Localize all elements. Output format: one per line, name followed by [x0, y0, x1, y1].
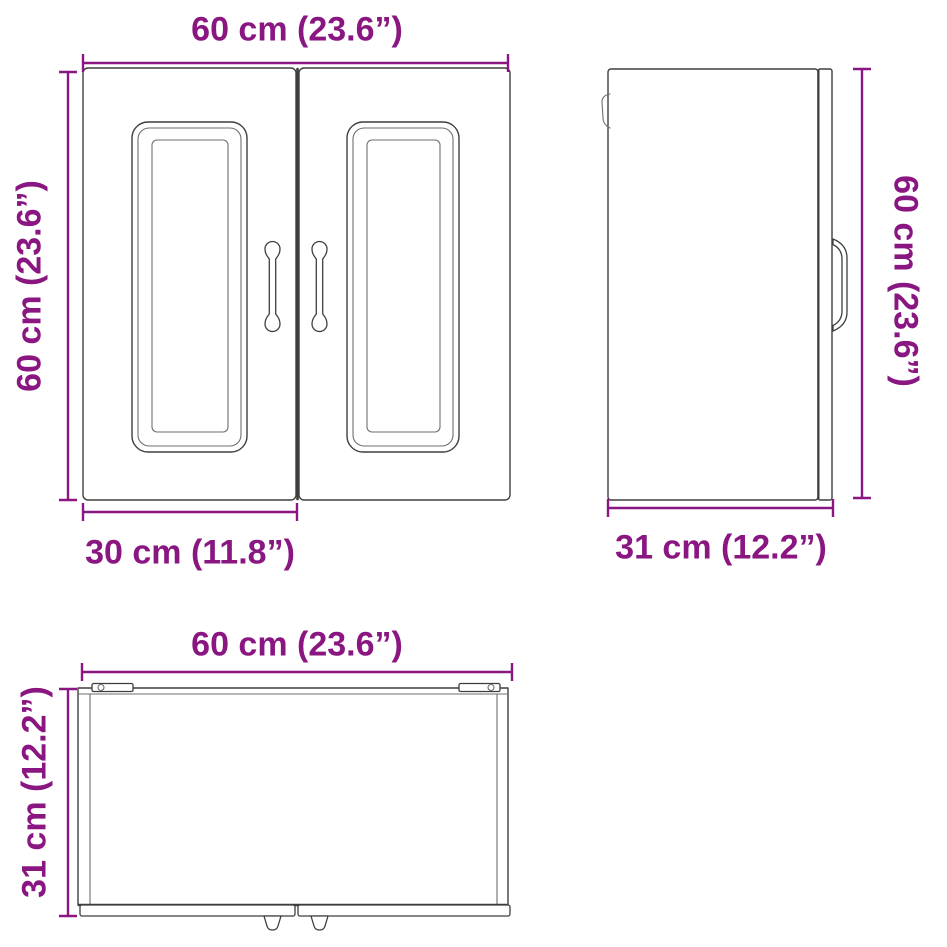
cabinet-line-art [0, 0, 947, 947]
side-door-edge [818, 69, 832, 500]
front-height-label: 60 cm (23.6”) [11, 180, 50, 392]
front-right-door-panel [347, 122, 459, 452]
front-left-door-handle [265, 242, 280, 332]
top-left-handle-tab [264, 916, 281, 930]
top-left-hinge [92, 684, 133, 692]
side-view-drawing [602, 69, 847, 500]
front-view-drawing [83, 68, 510, 500]
front-width-dimension-line [83, 54, 508, 72]
top-view-drawing [78, 684, 510, 931]
front-right-door-handle [312, 242, 327, 332]
front-height-dimension-line [59, 72, 77, 500]
side-height-label: 60 cm (23.6”) [886, 175, 925, 387]
front-right-door [299, 68, 510, 500]
top-depth-dimension-line [59, 689, 77, 916]
side-height-dimension-line [853, 69, 871, 498]
top-right-door-edge [298, 905, 510, 916]
side-depth-label: 31 cm (12.2”) [615, 529, 827, 568]
top-right-hinge [459, 684, 500, 692]
top-left-door-edge [80, 905, 295, 916]
top-width-label: 60 cm (23.6”) [191, 626, 403, 665]
top-width-dimension-line [82, 663, 512, 681]
dimension-diagram: 60 cm (23.6”) 60 cm (23.6”) 30 cm (11.8”… [0, 0, 947, 947]
front-door-width-dimension-line [83, 503, 297, 521]
front-door-width-label: 30 cm (11.8”) [85, 534, 295, 573]
top-depth-label: 31 cm (12.2”) [16, 686, 55, 898]
front-left-door-panel [132, 122, 247, 452]
top-right-handle-tab [311, 916, 328, 930]
front-left-door [83, 68, 296, 500]
side-depth-dimension-line [608, 499, 833, 517]
top-carcass [78, 688, 508, 905]
side-hinge-detail [602, 94, 610, 128]
side-door-handle [833, 239, 847, 331]
side-carcass [608, 69, 818, 500]
front-width-label: 60 cm (23.6”) [191, 11, 403, 50]
